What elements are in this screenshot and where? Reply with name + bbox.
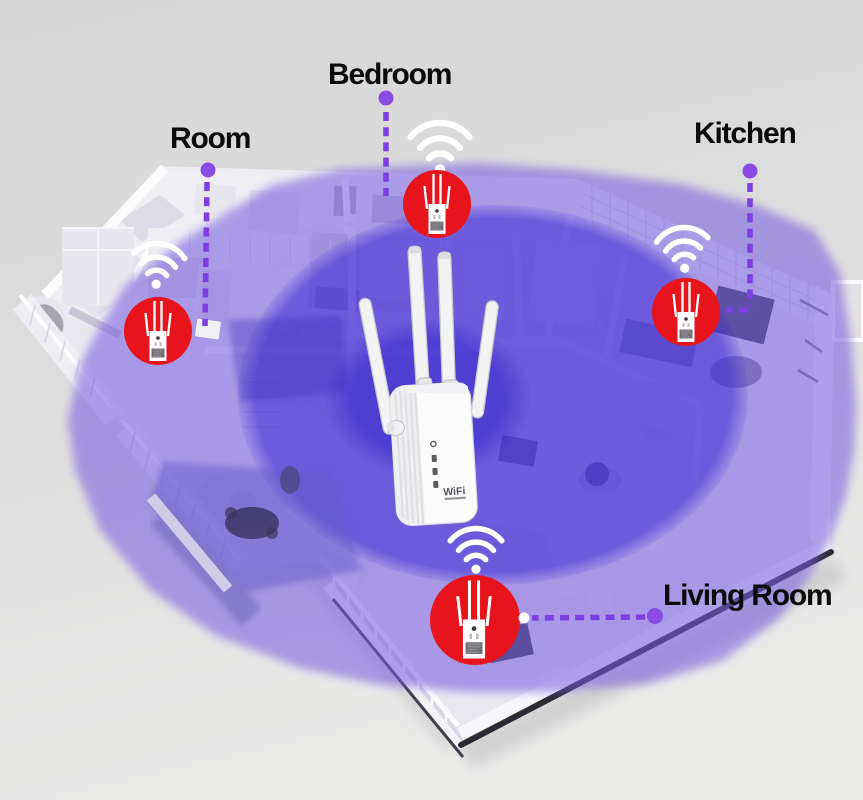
svg-text:WiFi: WiFi xyxy=(443,485,466,498)
